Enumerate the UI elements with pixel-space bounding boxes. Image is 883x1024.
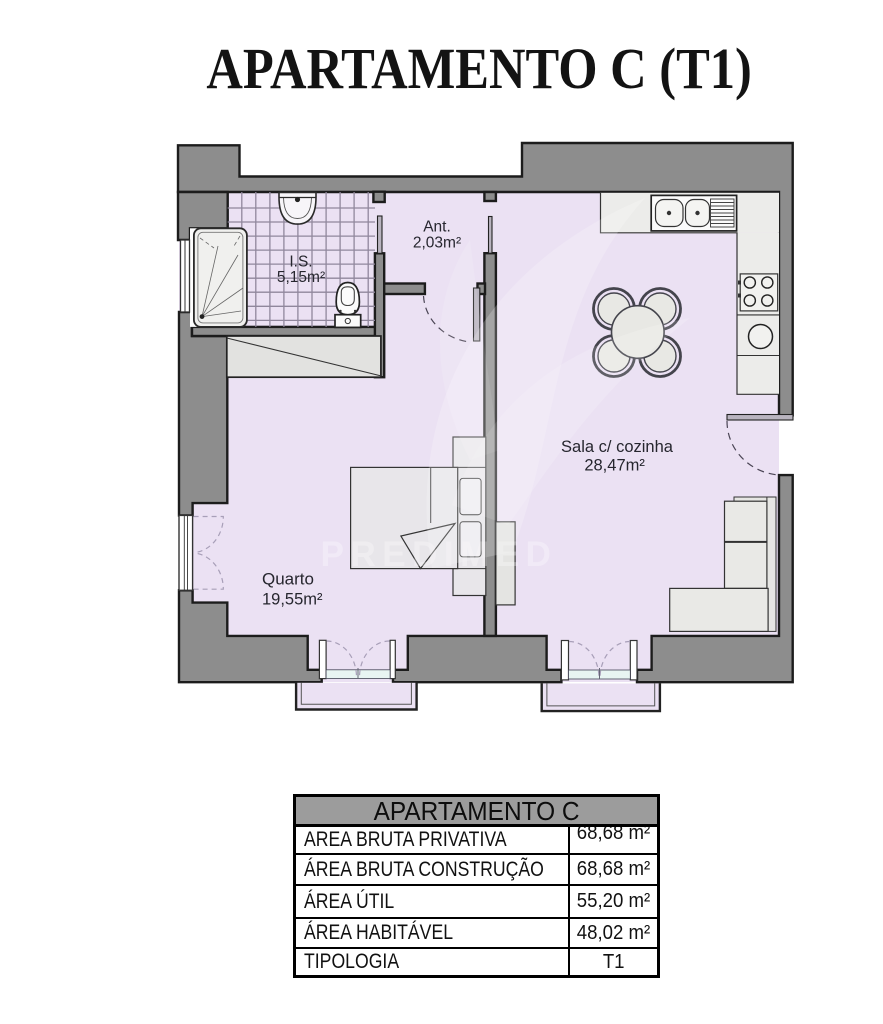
svg-text:Quarto: Quarto (262, 570, 314, 589)
svg-text:28,47m²: 28,47m² (584, 456, 645, 474)
svg-text:I.S.: I.S. (289, 254, 312, 271)
svg-text:19,55m²: 19,55m² (262, 591, 323, 609)
svg-text:2,03m²: 2,03m² (413, 234, 461, 251)
svg-text:PREDIMED: PREDIMED (321, 535, 558, 574)
svg-text:Sala c/ cozinha: Sala c/ cozinha (561, 438, 674, 456)
svg-text:5,15m²: 5,15m² (277, 269, 325, 286)
svg-text:Ant.: Ant. (423, 219, 451, 236)
